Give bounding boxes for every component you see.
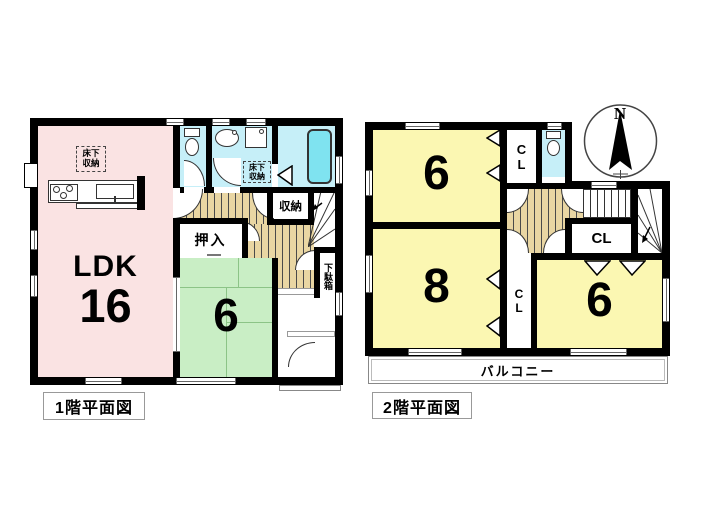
window	[366, 255, 372, 293]
window	[408, 349, 462, 355]
wall	[631, 189, 638, 253]
underfloor-text: 床下収納	[248, 163, 266, 181]
wall	[242, 224, 248, 258]
wall	[500, 122, 507, 348]
window	[212, 119, 230, 125]
wall	[272, 258, 278, 377]
room-6br-size: 6	[586, 277, 613, 325]
stair-treads-2f	[583, 189, 631, 218]
wall	[565, 122, 572, 189]
wall	[314, 247, 335, 253]
toilet-bowl-1f	[185, 138, 199, 156]
shoe-cabinet-label: 下駄箱	[320, 254, 335, 298]
window	[663, 278, 669, 322]
wall	[272, 126, 278, 164]
bath-folding-door-icon	[277, 165, 293, 186]
washer-tap	[259, 129, 264, 134]
window	[246, 119, 266, 125]
floor1-title: 1階平面図	[43, 392, 145, 420]
window	[336, 292, 342, 316]
bay-window	[24, 163, 38, 188]
window	[336, 156, 342, 184]
wall	[365, 122, 572, 130]
entrance-step	[287, 331, 335, 337]
window	[570, 349, 627, 355]
ldk-label: LDK	[73, 252, 138, 282]
balcony-text: バルコニー	[481, 361, 556, 380]
stove-burner	[60, 192, 67, 199]
window	[31, 230, 37, 250]
wall	[565, 218, 572, 253]
window	[176, 378, 236, 384]
room-8-label: 8	[373, 251, 500, 323]
window	[591, 182, 617, 188]
toilet-tank-2f	[546, 131, 561, 139]
wall	[30, 118, 343, 126]
entrance-porch	[279, 385, 341, 391]
shoe-cabinet-text: 下駄箱	[323, 263, 332, 290]
storage-text: 収納	[279, 198, 302, 214]
wall	[173, 352, 180, 377]
closet-mid-label: CL	[572, 224, 631, 253]
stove-burner	[53, 186, 60, 193]
wall	[308, 187, 314, 219]
room-6tl-size: 6	[423, 150, 450, 198]
floor2-title: 2階平面図	[372, 392, 472, 419]
ldk-size: 16	[79, 282, 131, 329]
toilet-tank-1f	[184, 128, 200, 137]
closet-between-label: CL	[507, 253, 531, 348]
wall	[565, 181, 670, 189]
window	[547, 123, 562, 129]
window	[166, 119, 184, 125]
storage-label: 収納	[273, 193, 308, 219]
room-6br-label: 6	[537, 266, 662, 336]
kitchen-tap	[114, 196, 116, 203]
stair-landing-step	[274, 288, 316, 295]
wall	[30, 118, 38, 385]
ldk-label-block: LDK 16	[38, 238, 173, 342]
oshiire-text: 押入	[195, 230, 227, 250]
kitchen-wall-stub	[137, 176, 145, 210]
wall	[267, 219, 314, 225]
toilet-bowl-2f	[547, 140, 560, 156]
balcony-label: バルコニー	[368, 357, 668, 383]
room-6tl-label: 6	[373, 138, 500, 210]
closet-between-text: CL	[513, 287, 525, 315]
room-8-size: 8	[423, 263, 450, 311]
wall	[365, 222, 507, 229]
tatami-size-label: 6	[180, 281, 272, 349]
wall	[206, 126, 212, 187]
wall	[173, 126, 180, 188]
window	[31, 275, 37, 297]
floorplan-image: LDK 16 6 押入 収納 床下収納 床下収納 下駄箱 1階平面図	[0, 0, 705, 525]
floor1-title-text: 1階平面図	[55, 394, 133, 418]
window	[405, 123, 440, 129]
floor2-title-text: 2階平面図	[383, 394, 461, 418]
tatami-size: 6	[213, 292, 239, 338]
wall	[507, 183, 572, 189]
underfloor-storage-washroom: 床下収納	[243, 161, 271, 183]
stove-burner	[66, 185, 73, 192]
counter-lower	[76, 203, 143, 209]
closet-mid-text: CL	[592, 230, 612, 247]
wall	[204, 187, 214, 193]
closet-top-label: CL	[507, 130, 536, 183]
bathtub	[307, 129, 332, 184]
door-arc-entrance	[288, 342, 315, 367]
window	[85, 378, 122, 384]
wall	[365, 122, 373, 356]
wall	[180, 187, 184, 193]
stair-winder-lines-2f	[638, 189, 662, 253]
underfloor-storage-kitchen: 床下収納	[76, 146, 106, 172]
compass-north-text: N	[614, 104, 626, 124]
compass-north-label: N	[606, 104, 634, 124]
wall	[531, 253, 670, 260]
oshiire-label: 押入	[179, 224, 242, 256]
washbasin-tap	[232, 130, 237, 135]
underfloor-text: 床下収納	[81, 149, 101, 169]
wall	[536, 130, 542, 183]
wall	[662, 181, 670, 356]
closet-top-text: CL	[515, 142, 528, 172]
sliding-door-ldk-tatami	[173, 277, 180, 352]
window	[366, 170, 372, 196]
